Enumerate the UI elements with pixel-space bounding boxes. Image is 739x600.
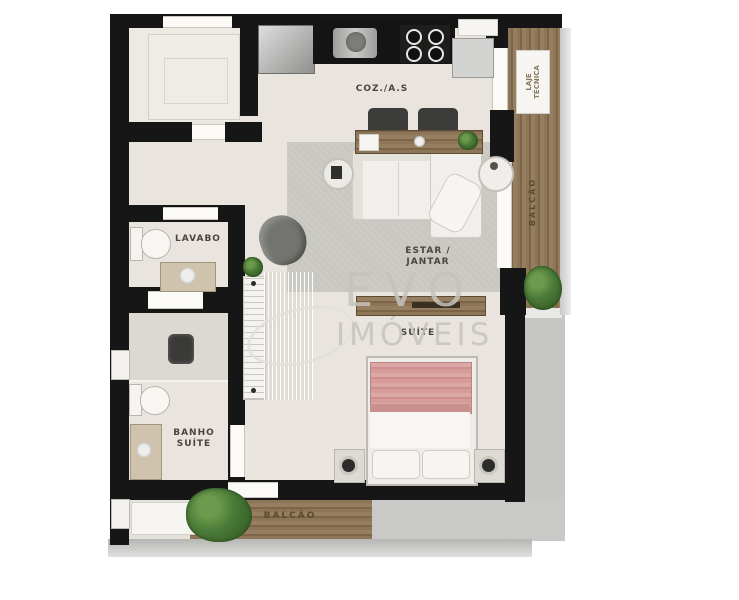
plant-armchair bbox=[243, 257, 263, 277]
laje-tecnica-box: LAJE TÉCNICA bbox=[516, 50, 550, 114]
wall-hall-north-a bbox=[110, 122, 192, 142]
window-kitchen-balcony bbox=[492, 48, 508, 110]
wall-entry-right bbox=[240, 28, 258, 116]
kitchen-label: COZ./A.S bbox=[337, 84, 427, 95]
side-table-right-lamp bbox=[490, 162, 498, 170]
watermark-imoveis: IMÓVEIS bbox=[336, 318, 493, 352]
banho-toilet-bowl bbox=[140, 386, 170, 415]
kitchen-cabinet-box bbox=[452, 38, 494, 78]
wall-hall-north-b bbox=[225, 122, 262, 142]
kitchen-sink-basin bbox=[346, 32, 366, 52]
bed-blanket-fold bbox=[370, 404, 470, 412]
window-left-2 bbox=[111, 499, 130, 529]
lavabo-label: LAVABO bbox=[166, 234, 230, 245]
kitchen-wall-cabinet bbox=[458, 19, 498, 36]
door-banho bbox=[148, 291, 203, 309]
kitchen-fridge bbox=[258, 25, 315, 74]
railing-bottom-glass bbox=[108, 539, 532, 557]
wall-living-right-b bbox=[500, 268, 526, 315]
stove-burner-4 bbox=[428, 46, 444, 62]
bed-pillow-right bbox=[422, 450, 470, 479]
laje-tecnica-label: LAJE TÉCNICA bbox=[517, 50, 549, 114]
stove-burner-2 bbox=[428, 29, 444, 45]
plant-balcony-bottom bbox=[186, 488, 252, 542]
partition-hinge-top bbox=[251, 281, 256, 286]
door-banho-suite bbox=[230, 425, 245, 477]
balcony-right-label-wrap: BALCÃO bbox=[500, 167, 564, 237]
balcony-right-label: BALCÃO bbox=[527, 178, 538, 226]
banho-sink bbox=[136, 442, 152, 458]
partition-hinge-bottom bbox=[251, 388, 256, 393]
door-hall bbox=[192, 124, 225, 140]
stove-burner-3 bbox=[406, 46, 422, 62]
wall-living-right-a bbox=[490, 110, 514, 162]
island-bowl bbox=[414, 136, 425, 147]
window-left-1 bbox=[111, 350, 130, 380]
wall-suite-right bbox=[505, 315, 525, 502]
island-tray bbox=[359, 134, 379, 151]
balcony-bottom-label: BALCÃO bbox=[250, 511, 330, 522]
side-table-left-lamp bbox=[331, 166, 342, 179]
wall-left bbox=[110, 14, 129, 545]
floor-plan-canvas: LAJE TÉCNICA BALCÃO BALCÃO bbox=[0, 0, 739, 600]
plant-balcony-right bbox=[524, 266, 562, 310]
bed-pillow-left bbox=[372, 450, 420, 479]
nightstand-right-lamp bbox=[482, 459, 495, 472]
exterior-shadow-bottom-right bbox=[372, 498, 565, 541]
island-plant bbox=[458, 131, 478, 150]
laje-tecnica-text: LAJE TÉCNICA bbox=[525, 65, 541, 99]
nightstand-left bbox=[334, 449, 365, 483]
bed-sheet bbox=[370, 412, 470, 448]
entry-room-faint-furniture-2 bbox=[164, 58, 228, 104]
door-entry bbox=[163, 16, 232, 28]
door-lavabo bbox=[163, 207, 218, 220]
watermark-evo: EVO bbox=[344, 266, 476, 314]
lavabo-sink bbox=[179, 267, 196, 284]
nightstand-left-lamp bbox=[342, 459, 355, 472]
stove-burner-1 bbox=[406, 29, 422, 45]
shower-head bbox=[168, 334, 194, 364]
sofa-cushion-line bbox=[398, 162, 399, 216]
banho-suite-label: BANHO SUÍTE bbox=[158, 428, 230, 450]
nightstand-right bbox=[474, 449, 505, 483]
